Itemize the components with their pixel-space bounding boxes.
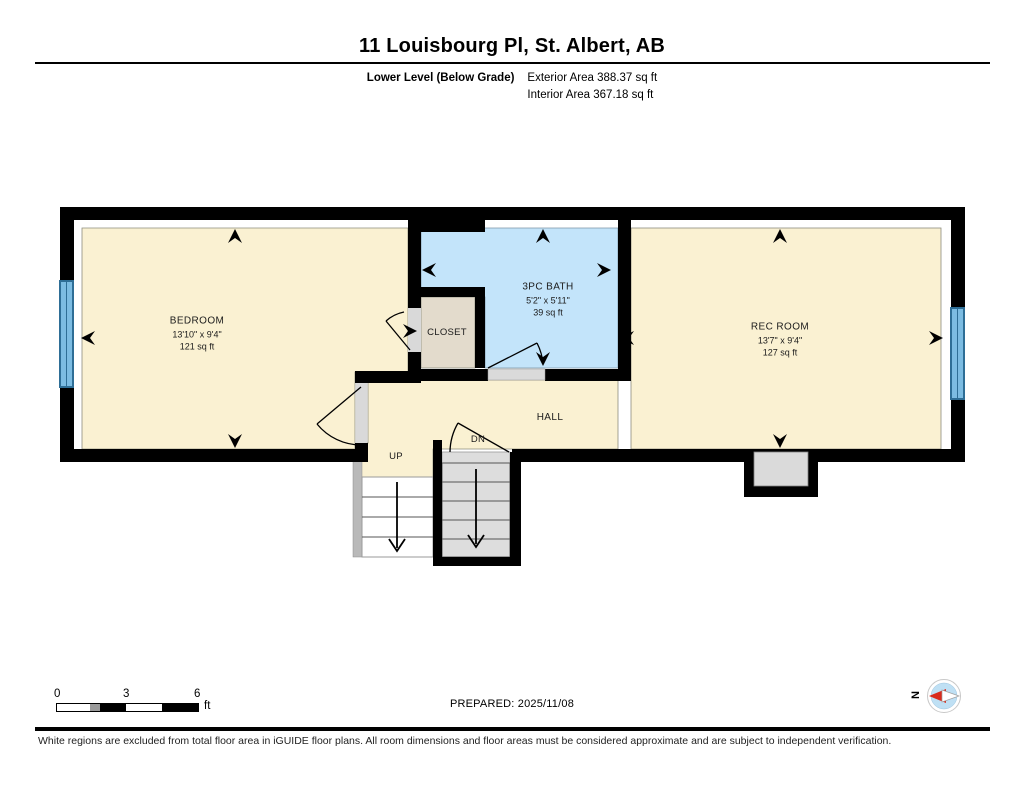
window-well: [754, 452, 808, 486]
bath-name: 3PC BATH: [522, 281, 573, 294]
bath-area: 39 sq ft: [522, 306, 573, 319]
stair-side-strip: [353, 455, 362, 557]
floor-plan-drawing: [0, 0, 1024, 791]
rec-room-label: REC ROOM 13'7" x 9'4" 127 sq ft: [751, 321, 809, 359]
compass-icon: [924, 678, 964, 718]
window-left: [60, 281, 73, 387]
up-label: UP: [389, 451, 403, 464]
dn-text: DN: [471, 434, 485, 447]
floorplan-page: 11 Louisbourg Pl, St. Albert, AB Lower L…: [0, 0, 1024, 791]
bedroom-label: BEDROOM 13'10" x 9'4" 121 sq ft: [170, 315, 224, 353]
bedroom-area: 121 sq ft: [170, 340, 224, 353]
bedroom-dims: 13'10" x 9'4": [170, 328, 224, 341]
bath-dims: 5'2" x 5'11": [522, 294, 573, 307]
rec-room-area: 127 sq ft: [751, 346, 809, 359]
rec-room-dims: 13'7" x 9'4": [751, 334, 809, 347]
compass: N: [910, 678, 970, 718]
bath-door-opening: [488, 369, 545, 380]
closet-name: CLOSET: [427, 327, 467, 340]
closet-label: CLOSET: [427, 327, 467, 340]
rec-room-name: REC ROOM: [751, 321, 809, 334]
hall-label: HALL: [537, 412, 564, 425]
footer-divider: [35, 727, 990, 731]
prepared-date: PREPARED: 2025/11/08: [0, 698, 1024, 710]
dn-label: DN: [471, 434, 485, 447]
compass-north-label: N: [910, 691, 922, 699]
bedroom-name: BEDROOM: [170, 315, 224, 328]
window-right: [951, 308, 964, 399]
bath-label: 3PC BATH 5'2" x 5'11" 39 sq ft: [522, 281, 573, 319]
disclaimer-text: White regions are excluded from total fl…: [38, 735, 1004, 747]
dn-stair-threshold: [442, 452, 510, 463]
hall-name: HALL: [537, 412, 564, 425]
up-text: UP: [389, 451, 403, 464]
bedroom-door-opening: [356, 383, 367, 443]
